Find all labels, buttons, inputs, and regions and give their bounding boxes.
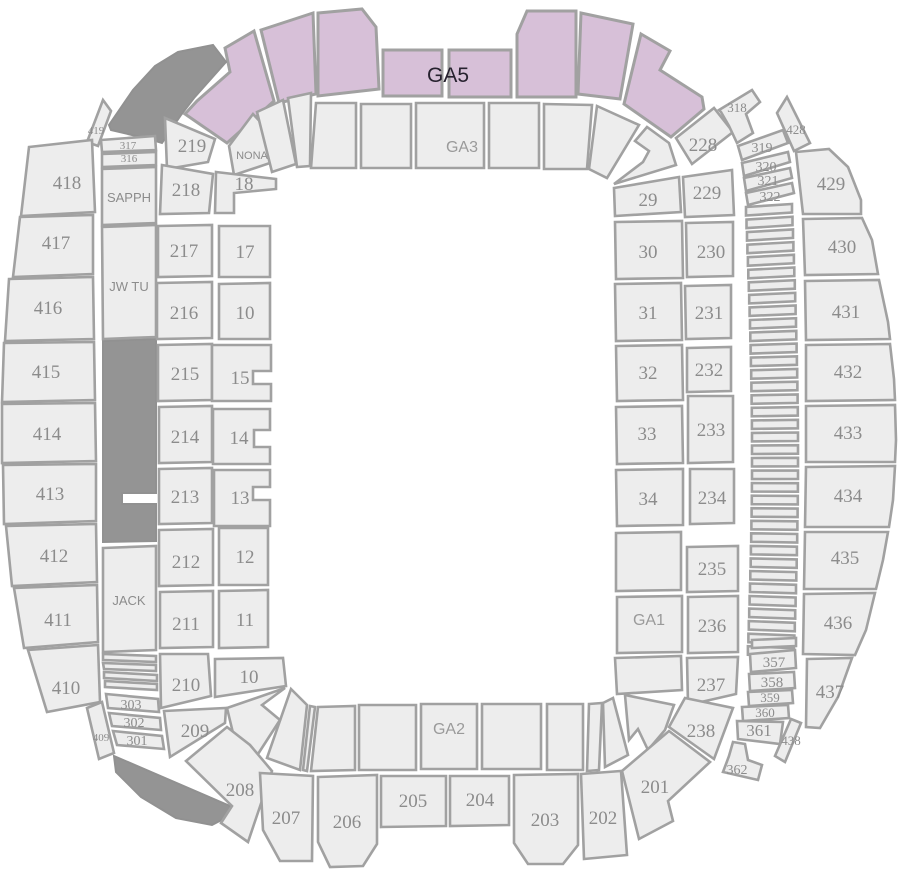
svg-text:410: 410: [52, 678, 81, 699]
svg-text:233: 233: [697, 420, 726, 441]
svg-text:217: 217: [170, 241, 199, 262]
svg-text:437: 437: [816, 682, 845, 703]
svg-text:214: 214: [171, 427, 200, 448]
svg-text:361: 361: [746, 721, 772, 740]
svg-text:357: 357: [763, 655, 786, 671]
svg-text:436: 436: [824, 613, 853, 634]
svg-text:13: 13: [231, 488, 250, 509]
svg-text:419: 419: [88, 125, 105, 137]
svg-text:SAPPH: SAPPH: [107, 190, 151, 205]
svg-text:318: 318: [727, 100, 747, 115]
svg-text:205: 205: [399, 791, 428, 812]
svg-text:213: 213: [171, 487, 200, 508]
svg-text:434: 434: [834, 486, 863, 507]
svg-text:433: 433: [834, 423, 863, 444]
svg-text:429: 429: [817, 174, 846, 195]
svg-text:JACK: JACK: [112, 593, 146, 608]
svg-text:10: 10: [240, 667, 259, 688]
svg-text:216: 216: [170, 303, 199, 324]
svg-text:360: 360: [755, 705, 775, 720]
svg-text:316: 316: [121, 153, 138, 165]
svg-text:438: 438: [781, 733, 801, 748]
svg-text:GA1: GA1: [633, 612, 665, 629]
svg-text:11: 11: [236, 610, 254, 631]
svg-text:202: 202: [589, 808, 618, 829]
svg-text:416: 416: [34, 298, 63, 319]
svg-text:32: 32: [639, 363, 658, 384]
svg-text:18: 18: [235, 174, 254, 195]
svg-text:33: 33: [638, 424, 657, 445]
svg-text:215: 215: [171, 364, 200, 385]
svg-text:29: 29: [639, 190, 658, 211]
svg-text:201: 201: [641, 777, 670, 798]
svg-text:219: 219: [178, 136, 207, 157]
svg-text:208: 208: [226, 780, 255, 801]
svg-text:412: 412: [40, 546, 69, 567]
svg-text:428: 428: [786, 122, 806, 137]
svg-text:17: 17: [236, 242, 255, 263]
svg-text:237: 237: [697, 675, 726, 696]
svg-text:231: 231: [695, 303, 724, 324]
svg-text:302: 302: [124, 716, 145, 731]
svg-text:JW TU: JW TU: [109, 279, 148, 294]
svg-text:415: 415: [32, 362, 61, 383]
svg-text:362: 362: [727, 763, 748, 778]
svg-text:358: 358: [761, 675, 784, 691]
svg-text:34: 34: [639, 489, 659, 510]
svg-text:418: 418: [53, 173, 82, 194]
svg-text:229: 229: [693, 183, 722, 204]
svg-text:NONA: NONA: [236, 150, 268, 162]
svg-text:359: 359: [760, 690, 780, 705]
svg-text:228: 228: [689, 135, 718, 156]
svg-text:206: 206: [333, 812, 362, 833]
svg-text:GA2: GA2: [433, 721, 465, 738]
svg-text:211: 211: [172, 614, 200, 635]
svg-text:317: 317: [120, 140, 137, 152]
svg-text:235: 235: [698, 559, 727, 580]
svg-text:204: 204: [466, 790, 495, 811]
svg-text:238: 238: [687, 721, 716, 742]
svg-text:409: 409: [93, 732, 110, 744]
svg-text:236: 236: [698, 616, 727, 637]
svg-text:203: 203: [531, 810, 560, 831]
svg-text:431: 431: [832, 302, 861, 323]
svg-text:230: 230: [697, 242, 726, 263]
svg-text:413: 413: [36, 484, 65, 505]
svg-text:430: 430: [828, 237, 857, 258]
svg-text:432: 432: [834, 362, 863, 383]
svg-text:30: 30: [639, 242, 658, 263]
svg-text:322: 322: [760, 190, 781, 205]
svg-text:14: 14: [230, 428, 250, 449]
svg-text:218: 218: [172, 180, 201, 201]
svg-text:234: 234: [698, 488, 727, 509]
svg-text:417: 417: [42, 233, 71, 254]
svg-text:15: 15: [231, 368, 250, 389]
svg-text:319: 319: [752, 141, 773, 156]
svg-text:414: 414: [33, 424, 62, 445]
svg-text:212: 212: [172, 552, 201, 573]
svg-text:31: 31: [639, 303, 658, 324]
svg-text:209: 209: [181, 721, 210, 742]
svg-text:411: 411: [44, 610, 72, 631]
svg-text:207: 207: [272, 808, 301, 829]
svg-text:232: 232: [695, 360, 724, 381]
svg-text:210: 210: [172, 675, 201, 696]
svg-text:GA5: GA5: [427, 64, 469, 87]
svg-text:GA3: GA3: [446, 139, 478, 156]
svg-text:12: 12: [236, 547, 255, 568]
svg-text:303: 303: [121, 698, 142, 713]
svg-text:435: 435: [831, 548, 860, 569]
svg-text:301: 301: [127, 734, 148, 749]
svg-text:10: 10: [236, 303, 255, 324]
